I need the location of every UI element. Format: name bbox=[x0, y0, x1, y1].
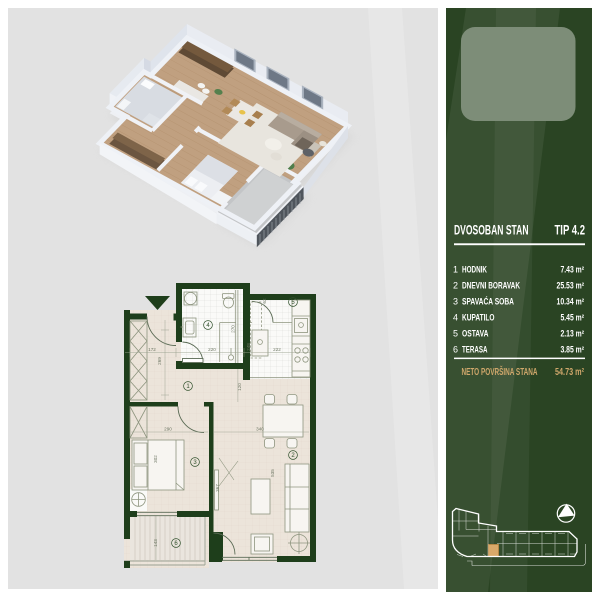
svg-text:120: 120 bbox=[237, 383, 242, 391]
svg-text:SPAVAĆA SOBA: SPAVAĆA SOBA bbox=[462, 296, 514, 307]
svg-text:5: 5 bbox=[453, 329, 458, 339]
svg-text:DVOSOBAN STAN: DVOSOBAN STAN bbox=[454, 222, 529, 238]
svg-text:DNEVNI BORAVAK: DNEVNI BORAVAK bbox=[462, 281, 520, 291]
svg-text:270: 270 bbox=[231, 325, 236, 333]
svg-text:10.34 m²: 10.34 m² bbox=[557, 297, 585, 307]
svg-text:62: 62 bbox=[262, 298, 267, 304]
svg-text:6: 6 bbox=[453, 345, 458, 355]
svg-text:7.43 m²: 7.43 m² bbox=[561, 265, 585, 275]
svg-text:1: 1 bbox=[453, 265, 458, 275]
svg-text:OSTAVA: OSTAVA bbox=[462, 329, 489, 339]
svg-text:4: 4 bbox=[453, 313, 458, 323]
svg-text:KUPATILO: KUPATILO bbox=[462, 313, 495, 323]
svg-text:NETO POVRŠINA STANA: NETO POVRŠINA STANA bbox=[462, 365, 538, 378]
svg-text:2.13 m²: 2.13 m² bbox=[561, 329, 585, 339]
svg-text:535: 535 bbox=[270, 469, 275, 477]
svg-text:269: 269 bbox=[157, 357, 162, 365]
svg-text:54.73 m²: 54.73 m² bbox=[555, 367, 584, 378]
svg-text:222: 222 bbox=[273, 347, 281, 352]
svg-text:290: 290 bbox=[164, 427, 172, 432]
svg-text:5.45 m²: 5.45 m² bbox=[561, 313, 585, 323]
svg-text:143: 143 bbox=[153, 539, 158, 547]
svg-text:HODNIK: HODNIK bbox=[462, 265, 487, 275]
svg-text:TERASA: TERASA bbox=[462, 345, 488, 355]
svg-text:248: 248 bbox=[246, 343, 251, 351]
svg-text:2: 2 bbox=[453, 281, 458, 291]
svg-text:367: 367 bbox=[215, 484, 220, 492]
svg-text:TIP 4.2: TIP 4.2 bbox=[555, 222, 586, 238]
svg-text:172: 172 bbox=[148, 347, 156, 352]
svg-text:302: 302 bbox=[153, 455, 158, 463]
svg-text:3.85 m²: 3.85 m² bbox=[561, 345, 585, 355]
svg-text:3: 3 bbox=[453, 297, 458, 307]
svg-text:25.53 m²: 25.53 m² bbox=[557, 281, 585, 291]
svg-text:220: 220 bbox=[208, 347, 216, 352]
svg-text:340: 340 bbox=[256, 427, 264, 432]
